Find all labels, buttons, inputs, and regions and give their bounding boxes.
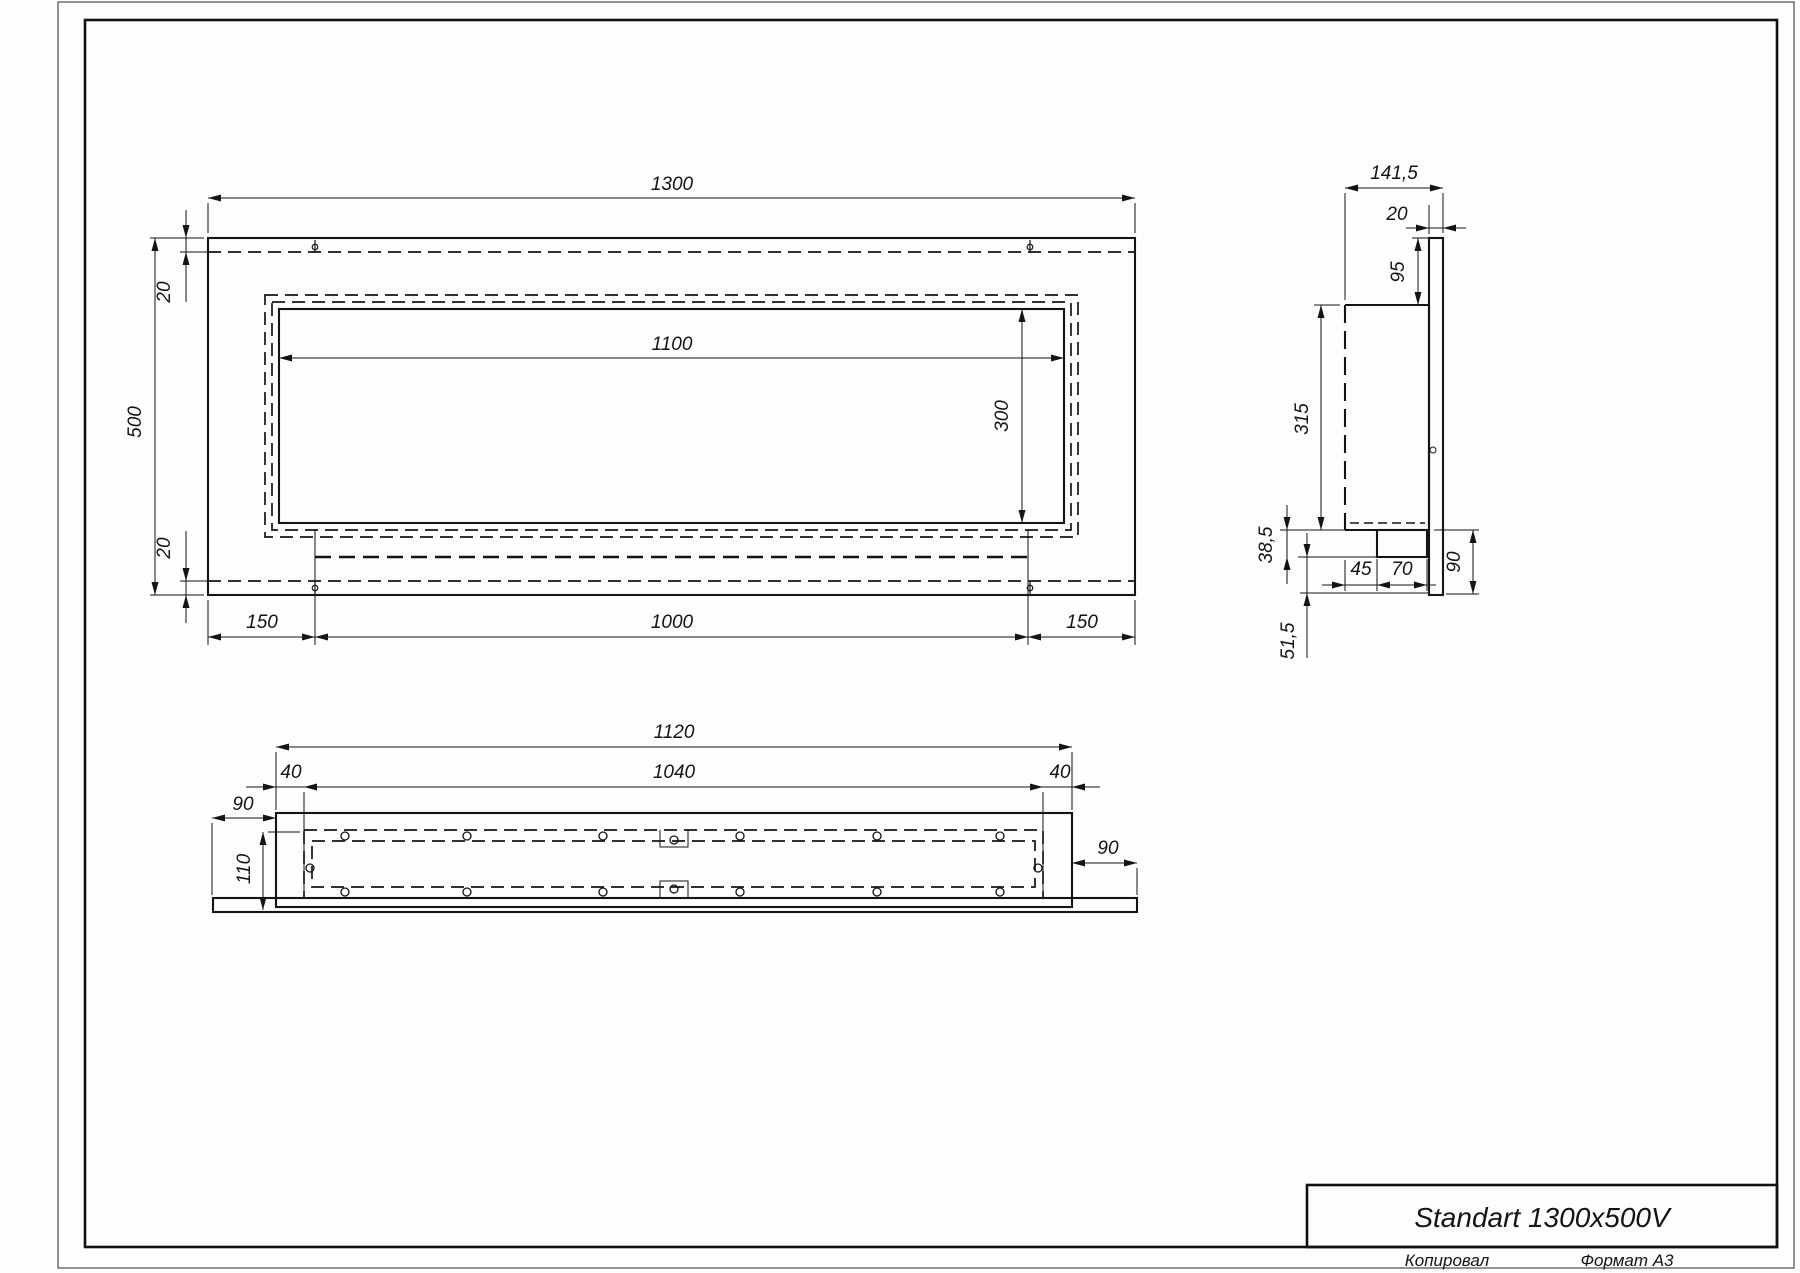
dim-front-opening-width: 1100 bbox=[652, 334, 693, 355]
side-foot-block bbox=[1377, 530, 1427, 557]
side-panel-hole bbox=[1430, 447, 1436, 453]
technical-drawing-canvas: 1300 500 20 20 1100 300 150 1000 150 bbox=[0, 0, 1800, 1273]
drawing-frame bbox=[85, 20, 1777, 1247]
title-block: Standart 1300x500V Копировал Формат А3 bbox=[1307, 1185, 1777, 1270]
dim-side-body-height: 315 bbox=[1292, 403, 1313, 435]
side-view-geometry bbox=[1345, 238, 1443, 595]
dim-front-bottom-inset: 20 bbox=[154, 537, 175, 560]
front-view: 1300 500 20 20 1100 300 150 1000 150 bbox=[125, 174, 1135, 645]
dim-side-foot-depth: 70 bbox=[1391, 559, 1413, 580]
dim-front-top-inset: 20 bbox=[154, 281, 175, 304]
front-flange-hidden-2 bbox=[265, 295, 1078, 537]
bottom-hidden-rect-2 bbox=[312, 841, 1035, 887]
front-dimension-lines bbox=[150, 198, 1135, 645]
dim-bottom-panel-overhang-left: 90 bbox=[232, 794, 254, 815]
bottom-center-notch-bottom bbox=[660, 881, 688, 898]
dim-side-panel-top-overhang: 95 bbox=[1388, 261, 1409, 283]
bottom-view: 1120 1040 40 40 90 110 90 bbox=[212, 722, 1137, 912]
dim-bottom-panel-overhang-right: 90 bbox=[1097, 838, 1119, 859]
dim-bottom-right-inset: 40 bbox=[1049, 762, 1071, 783]
drawing-sheet: 1300 500 20 20 1100 300 150 1000 150 bbox=[0, 0, 1800, 1273]
bottom-view-geometry bbox=[213, 813, 1137, 912]
footer-copied-label: Копировал bbox=[1405, 1251, 1490, 1270]
dim-front-left-margin: 150 bbox=[246, 612, 278, 633]
dim-front-overall-height: 500 bbox=[125, 406, 146, 438]
dim-bottom-body-width: 1120 bbox=[654, 722, 695, 743]
front-mounting-slots bbox=[312, 240, 1033, 594]
dim-side-panel-thickness: 20 bbox=[1385, 204, 1408, 225]
footer-format-label: Формат А3 bbox=[1580, 1251, 1674, 1270]
dim-side-foot-offset: 45 bbox=[1350, 559, 1372, 580]
dim-bottom-inner-width: 1040 bbox=[653, 762, 696, 783]
side-front-panel bbox=[1429, 238, 1443, 595]
dim-side-panel-bottom-run: 51,5 bbox=[1278, 622, 1299, 659]
dim-side-panel-bottom-overhang: 90 bbox=[1444, 551, 1465, 573]
dim-bottom-left-inset: 40 bbox=[280, 762, 302, 783]
bottom-front-panel-strip bbox=[213, 898, 1137, 912]
page-edge bbox=[58, 2, 1794, 1268]
dim-front-opening-height: 300 bbox=[992, 400, 1013, 432]
dim-side-foot-drop: 38,5 bbox=[1256, 526, 1277, 563]
dim-front-overall-width: 1300 bbox=[651, 174, 694, 195]
dim-side-overall-depth: 141,5 bbox=[1370, 163, 1418, 184]
dim-bottom-body-depth: 110 bbox=[234, 853, 255, 884]
side-view: 141,5 20 95 315 38,5 51,5 45 70 90 bbox=[1256, 163, 1479, 659]
dim-front-slot-span: 1000 bbox=[651, 612, 694, 633]
dim-front-right-margin: 150 bbox=[1066, 612, 1098, 633]
title-block-product-name: Standart 1300x500V bbox=[1414, 1202, 1672, 1233]
